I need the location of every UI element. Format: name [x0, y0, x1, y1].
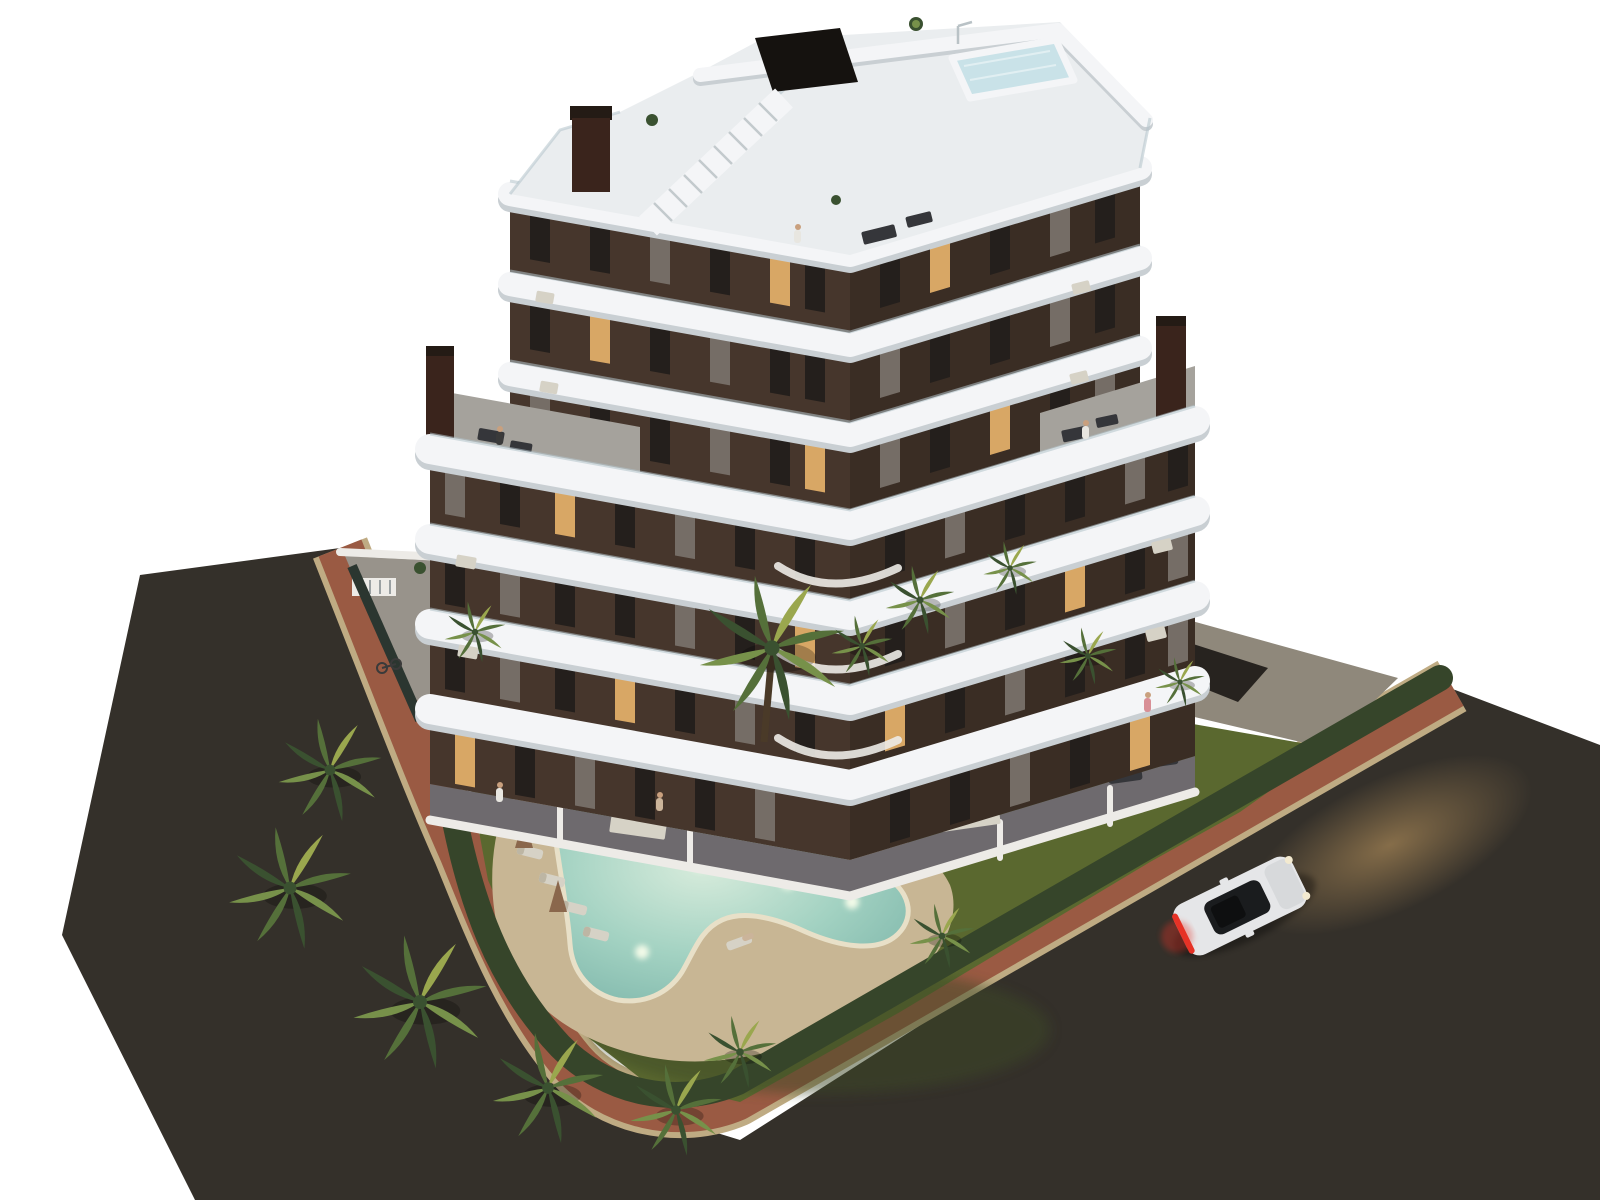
- person: [496, 426, 503, 445]
- window: [805, 353, 825, 403]
- roof-plant: [646, 114, 658, 126]
- window: [990, 403, 1010, 455]
- window: [710, 426, 730, 476]
- window: [990, 223, 1010, 275]
- window: [805, 263, 825, 313]
- render-canvas: [0, 0, 1600, 1200]
- person: [496, 782, 503, 802]
- window: [990, 313, 1010, 365]
- window: [530, 213, 550, 263]
- window: [1095, 282, 1115, 334]
- roof-chimney: [570, 106, 612, 120]
- window: [455, 730, 475, 788]
- person: [656, 792, 663, 811]
- window: [930, 331, 950, 383]
- window: [930, 241, 950, 293]
- window: [770, 437, 790, 487]
- window: [880, 256, 900, 308]
- window: [1050, 295, 1070, 347]
- window: [930, 421, 950, 473]
- window: [515, 741, 535, 799]
- person: [1082, 420, 1089, 439]
- window: [650, 325, 670, 375]
- window: [710, 336, 730, 386]
- window: [755, 784, 775, 842]
- window: [770, 257, 790, 307]
- window: [880, 346, 900, 398]
- window: [880, 436, 900, 488]
- window: [805, 443, 825, 493]
- architectural-render: [0, 0, 1600, 1200]
- window: [1095, 192, 1115, 244]
- person: [1144, 692, 1151, 712]
- window: [590, 314, 610, 364]
- window: [770, 347, 790, 397]
- window: [1050, 205, 1070, 257]
- apartment-building: [426, 17, 1195, 896]
- window: [635, 762, 655, 820]
- person: [794, 224, 801, 243]
- window: [650, 415, 670, 465]
- window: [695, 773, 715, 831]
- window: [590, 224, 610, 274]
- window: [530, 303, 550, 353]
- window: [710, 246, 730, 296]
- stair-bulkhead: [755, 28, 858, 92]
- window: [575, 752, 595, 810]
- window: [650, 235, 670, 285]
